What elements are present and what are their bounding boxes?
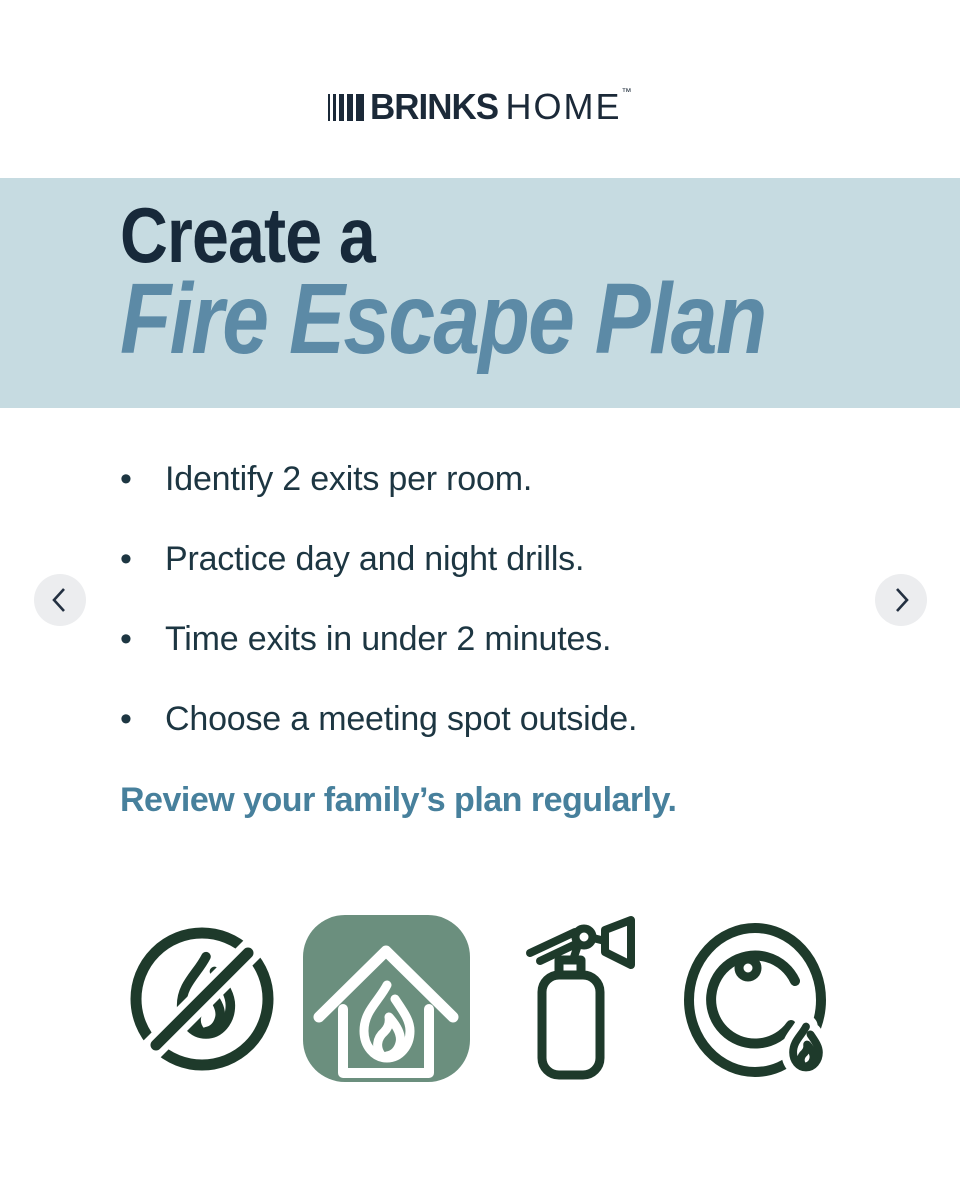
tip-text: Time exits in under 2 minutes.: [165, 622, 611, 656]
chevron-right-icon: [890, 585, 912, 615]
review-footer-text: Review your family’s plan regularly.: [120, 781, 676, 820]
tips-list: • Identify 2 exits per room. • Practice …: [120, 462, 637, 782]
bullet-icon: •: [120, 622, 165, 656]
trademark-symbol: ™: [622, 87, 632, 98]
tip-item: • Practice day and night drills.: [120, 542, 637, 576]
title-banner: Create a Fire Escape Plan: [0, 178, 960, 408]
bell-dot: [739, 959, 757, 977]
house-fire-icon: [303, 915, 470, 1082]
carousel-next-button[interactable]: [875, 574, 927, 626]
bullet-icon: •: [120, 462, 165, 496]
tip-item: • Time exits in under 2 minutes.: [120, 622, 637, 656]
bullet-icon: •: [120, 542, 165, 576]
fire-alarm-bell-icon: [678, 915, 833, 1080]
banner-title: Fire Escape Plan: [120, 262, 765, 377]
tip-text: Choose a meeting spot outside.: [165, 702, 637, 736]
carousel-prev-button[interactable]: [34, 574, 86, 626]
brand-logo: BRINKS HOME ™: [0, 86, 960, 128]
tank-body: [542, 975, 600, 1075]
brinks-bars-icon: [328, 94, 364, 121]
tip-text: Identify 2 exits per room.: [165, 462, 532, 496]
no-open-flames-icon: [127, 924, 277, 1074]
chevron-left-icon: [49, 585, 71, 615]
bullet-icon: •: [120, 702, 165, 736]
fire-extinguisher-icon: [520, 915, 640, 1080]
tip-item: • Identify 2 exits per room.: [120, 462, 637, 496]
brand-name-light: HOME: [506, 86, 622, 128]
brand-name-bold: BRINKS: [370, 86, 498, 128]
nozzle-horn: [605, 920, 631, 965]
tip-item: • Choose a meeting spot outside.: [120, 702, 637, 736]
tip-text: Practice day and night drills.: [165, 542, 584, 576]
fire-escape-plan-card: BRINKS HOME ™ Create a Fire Escape Plan …: [0, 0, 960, 1200]
